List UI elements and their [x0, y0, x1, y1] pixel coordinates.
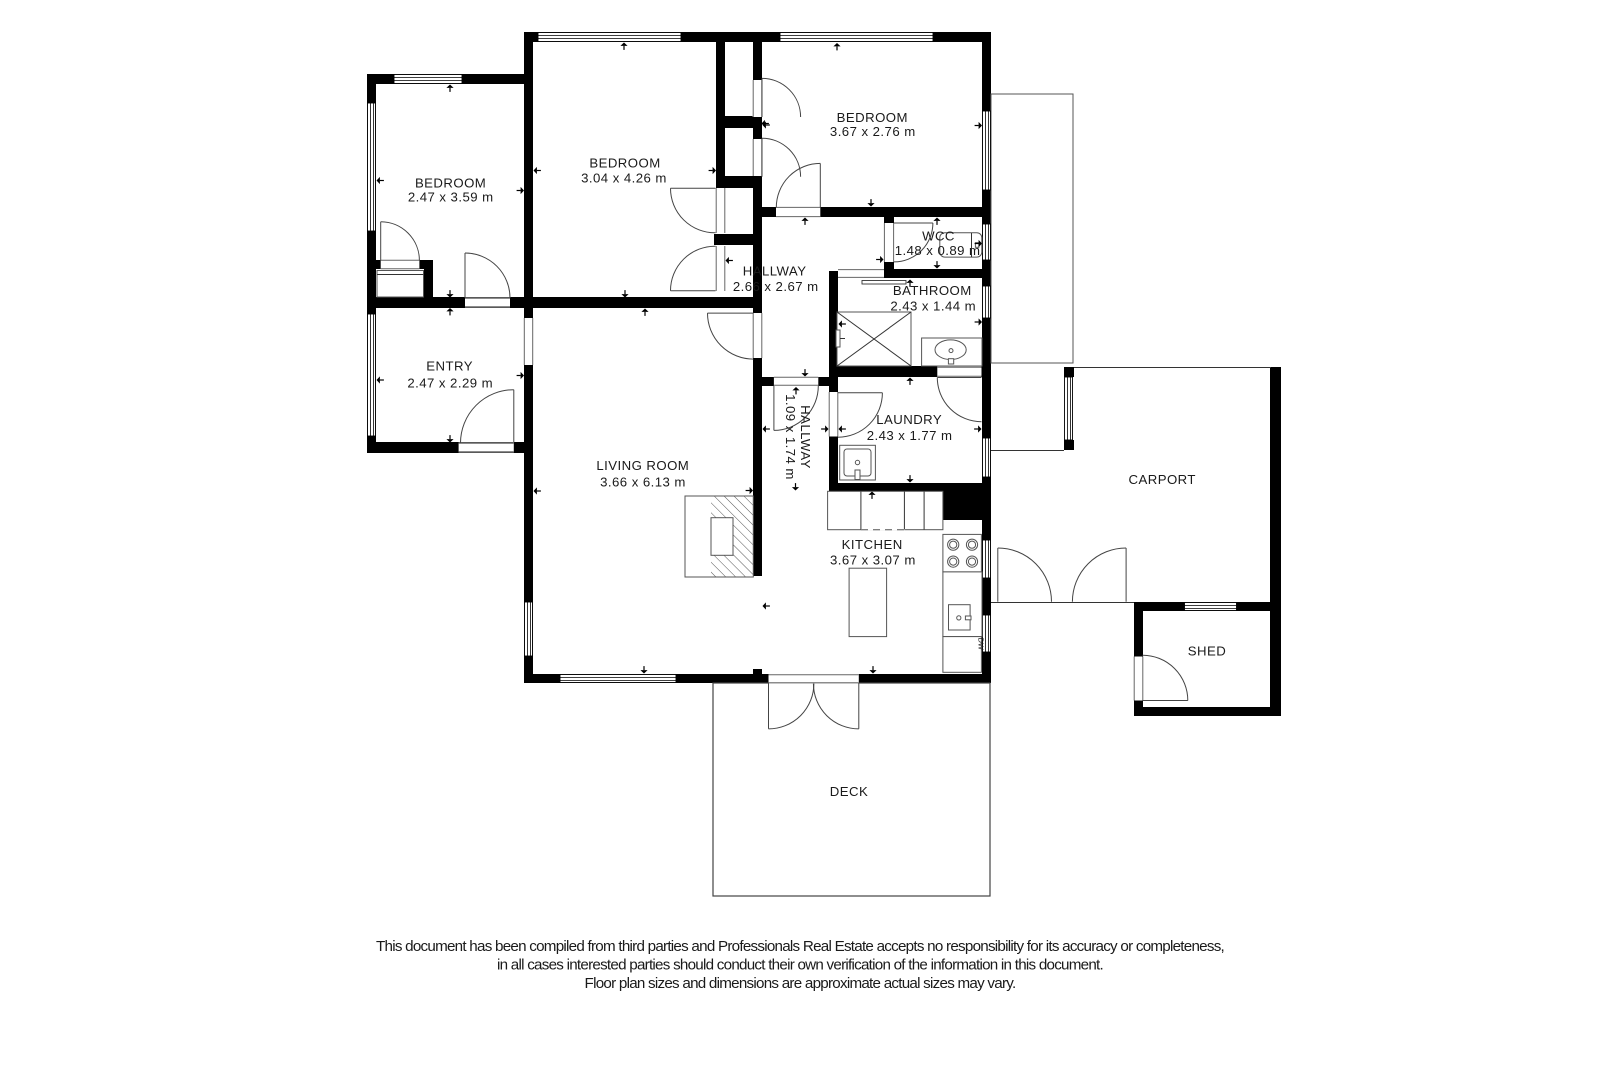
svg-text:3.67 x 2.76 m: 3.67 x 2.76 m [830, 124, 916, 139]
svg-text:2.47 x 2.29 m: 2.47 x 2.29 m [407, 375, 493, 390]
svg-text:HALLWAY1.09 x 1.74 m: HALLWAY1.09 x 1.74 m [783, 394, 813, 480]
svg-text:BATHROOM: BATHROOM [893, 283, 972, 298]
svg-text:CARPORT: CARPORT [1129, 472, 1196, 487]
svg-text:2.66 x 2.67 m: 2.66 x 2.67 m [733, 279, 819, 294]
svg-text:3.67 x 3.07 m: 3.67 x 3.07 m [830, 553, 916, 568]
svg-text:SHED: SHED [1188, 644, 1226, 659]
svg-text:LAUNDRY: LAUNDRY [876, 412, 942, 427]
svg-text:in all cases interested partie: in all cases interested parties should c… [497, 957, 1103, 974]
svg-text:2.43 x 1.77 m: 2.43 x 1.77 m [867, 428, 953, 443]
svg-text:This document has been compile: This document has been compiled from thi… [376, 938, 1224, 955]
svg-text:LIVING ROOM: LIVING ROOM [596, 458, 689, 473]
svg-text:ENTRY: ENTRY [426, 359, 473, 374]
svg-text:3.66 x 6.13 m: 3.66 x 6.13 m [600, 474, 686, 489]
svg-text:3.04 x 4.26 m: 3.04 x 4.26 m [581, 170, 667, 185]
svg-text:WCC: WCC [922, 229, 955, 244]
svg-text:BEDROOM: BEDROOM [837, 110, 908, 125]
svg-text:DECK: DECK [830, 784, 868, 799]
svg-text:BEDROOM: BEDROOM [415, 176, 486, 191]
svg-text:Floor plan sizes and dimension: Floor plan sizes and dimensions are appr… [585, 975, 1016, 992]
svg-text:2.47 x 3.59 m: 2.47 x 3.59 m [408, 190, 494, 205]
svg-text:DW: DW [977, 638, 986, 651]
svg-text:KITCHEN: KITCHEN [842, 537, 903, 552]
svg-text:BEDROOM: BEDROOM [589, 155, 660, 170]
svg-text:2.43 x 1.44 m: 2.43 x 1.44 m [890, 298, 976, 313]
svg-text:1.48 x 0.89 m: 1.48 x 0.89 m [895, 243, 981, 258]
svg-text:HALLWAY: HALLWAY [743, 263, 807, 278]
